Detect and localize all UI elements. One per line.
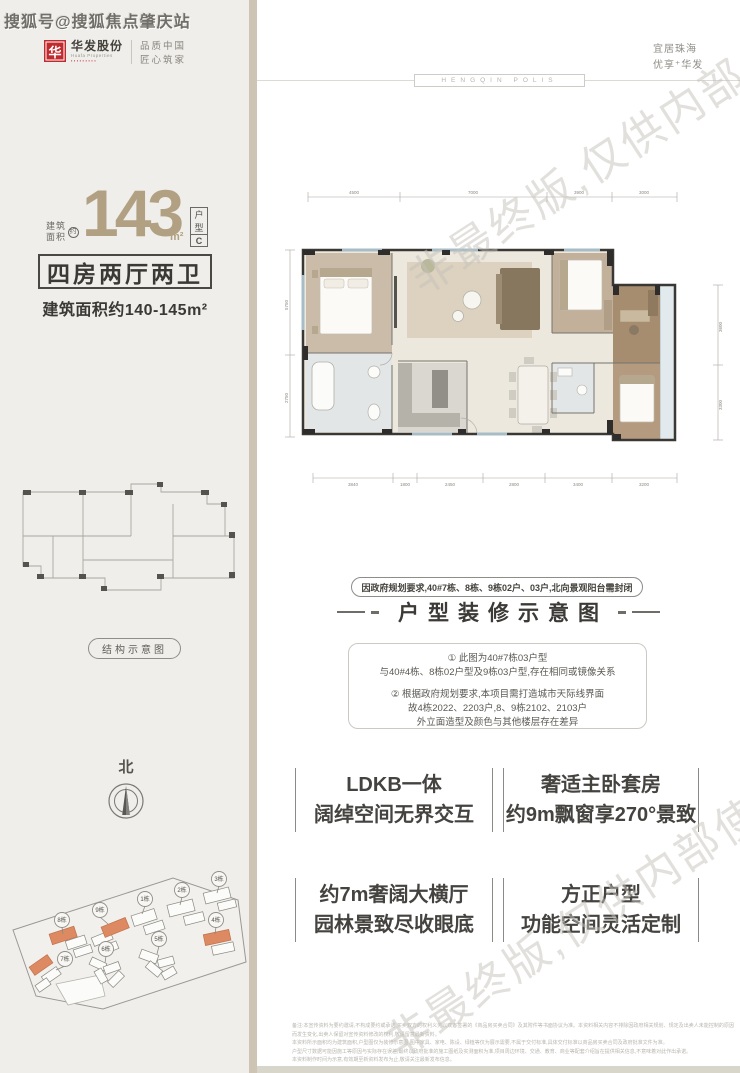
structure-diagram <box>13 476 237 596</box>
logo-texts: 华发股份 Huafa Properties ▪▪▪▪▪▪▪▪▪ <box>71 40 123 65</box>
note-line: ② 根据政府规划要求,本项目需打造城市天际线界面 <box>349 688 646 702</box>
planning-notice: 因政府规划要求,40#7栋、8栋、9栋02户、03户,北向景观阳台需封闭 <box>351 577 643 597</box>
structure-wall-blocks <box>23 482 235 591</box>
svg-text:7000: 7000 <box>468 190 479 195</box>
note-line: 故4栋2022、2203户,8、9栋2102、2103户 <box>349 702 646 716</box>
tagline-line1: 品质中国 <box>140 40 186 54</box>
note-line: 外立面造型及颜色与其他楼层存在差异 <box>349 716 646 730</box>
balloon-4: 4栋 <box>211 916 220 924</box>
compass-north-label: 北 <box>104 756 148 777</box>
note-line: ① 此图为40#7栋03户型 <box>349 652 646 666</box>
compass-icon <box>104 777 148 825</box>
logo-dots: ▪▪▪▪▪▪▪▪▪ <box>71 58 123 64</box>
balloon-1: 1栋 <box>140 895 149 903</box>
structure-label: 结构示意图 <box>88 638 181 659</box>
section-heading-text: 户型装修示意图 <box>389 597 608 627</box>
project-name-badge: HENGQIN POLIS <box>414 74 585 87</box>
feature-grid: LDKB一体 阔绰空间无界交互 奢适主卧套房 约9m飘窗享270°景致 约7m奢… <box>295 768 699 942</box>
rooms-summary: 四房两厅两卫 <box>38 254 212 289</box>
feature-line: LDKB一体 <box>346 770 442 800</box>
logo-tagline: 品质中国 匠心筑家 <box>140 40 186 69</box>
svg-text:3400: 3400 <box>573 482 584 487</box>
disclaimer-line: 户型尺寸数据可能因施工等原因与实际存在误差,最终以政府批准的施工图纸及实测面积为… <box>292 1048 734 1057</box>
logo-separator <box>131 40 132 64</box>
svg-text:1800: 1800 <box>400 482 411 487</box>
type-char-2: 型 <box>191 221 207 234</box>
svg-text:3840: 3840 <box>348 482 359 487</box>
feature-line: 方正户型 <box>561 880 641 910</box>
type-char-3: C <box>191 234 207 246</box>
note-line: 与40#4栋、8栋02户型及9栋03户型,存在相同或镜像关系 <box>349 666 646 680</box>
brand-logo: 华 华发股份 Huafa Properties ▪▪▪▪▪▪▪▪▪ 品质中国 匠… <box>44 40 186 69</box>
unit-area-value: 143 <box>82 180 180 246</box>
svg-text:3600: 3600 <box>718 321 723 332</box>
feature-line: 约9m飘窗享270°景致 <box>506 800 696 830</box>
svg-text:2750: 2750 <box>284 392 289 403</box>
feature-line: 约7m奢阔大横厅 <box>320 880 469 910</box>
area-label-line2: 面积 <box>46 232 66 243</box>
balloon-9: 9栋 <box>95 906 104 914</box>
area-label: 建筑 面积 约 <box>46 221 79 244</box>
approx-badge: 约 <box>68 227 79 238</box>
heading-dash <box>371 611 379 614</box>
balloon-2: 2栋 <box>177 886 186 894</box>
feature-ldkb: LDKB一体 阔绰空间无界交互 <box>295 768 493 832</box>
feature-wide-hall: 约7m奢阔大横厅 园林景致尽收眼底 <box>295 878 493 942</box>
svg-text:5750: 5750 <box>284 299 289 310</box>
balloon-6: 6栋 <box>101 945 110 953</box>
heading-dash <box>632 611 660 613</box>
flyer-page: HENGQIN POLIS 宜居珠海 优享⁺华发 华 华发股份 Huafa Pr… <box>0 0 740 1073</box>
svg-text:3200: 3200 <box>639 482 650 487</box>
slogan-line1: 宜居珠海 <box>653 42 703 58</box>
feature-square-layout: 方正户型 功能空间灵活定制 <box>503 878 699 942</box>
disclaimer-line: 本资料制作时间为示意,有效期至新资料发布为止,敬请关注最新发布信息。 <box>292 1056 734 1065</box>
feature-line: 阔绰空间无界交互 <box>314 800 474 830</box>
brand-slogan: 宜居珠海 优享⁺华发 <box>653 42 703 73</box>
area-label-line1: 建筑 <box>46 221 66 232</box>
feature-line: 功能空间灵活定制 <box>521 910 681 940</box>
svg-text:2450: 2450 <box>445 482 456 487</box>
balloon-7: 7栋 <box>60 955 69 963</box>
svg-text:3300: 3300 <box>718 399 723 410</box>
section-heading: 户型装修示意图 <box>257 598 740 626</box>
logo-name: 华发股份 <box>71 40 123 53</box>
huafa-logo-icon: 华 <box>44 40 66 62</box>
floorplan-image: 4500 7000 3900 3000 3840 1800 2450 2800 … <box>282 150 734 490</box>
sohu-watermark: 搜狐号@搜狐焦点肇庆站 <box>4 8 191 32</box>
svg-text:3900: 3900 <box>574 190 585 195</box>
heading-dash <box>337 611 365 613</box>
area-range: 建筑面积约140-145m² <box>38 296 212 320</box>
feature-line: 园林景致尽收眼底 <box>314 910 474 940</box>
type-char-1: 户 <box>191 208 207 221</box>
svg-text:4500: 4500 <box>349 190 360 195</box>
balloon-8: 8栋 <box>57 916 66 924</box>
tagline-line2: 匠心筑家 <box>140 54 186 68</box>
feature-master-suite: 奢适主卧套房 约9m飘窗享270°景致 <box>503 768 699 832</box>
slogan-line2: 优享⁺华发 <box>653 58 703 74</box>
legal-disclaimer: 备注:本宣传资料为要约邀请,不构成要约或承诺,买卖双方的权利义务以双方签署的《商… <box>292 1022 734 1065</box>
svg-text:2800: 2800 <box>509 482 520 487</box>
svg-text:3000: 3000 <box>639 190 650 195</box>
bottom-strip <box>257 1066 740 1073</box>
unit-type-box: 户 型 C <box>190 207 208 247</box>
heading-dash <box>618 611 626 614</box>
balloon-5: 5栋 <box>154 935 163 943</box>
balloon-3: 3栋 <box>214 875 223 883</box>
unit-area-unit: m² <box>170 231 183 243</box>
balcony <box>660 285 675 440</box>
compass: 北 <box>104 756 148 830</box>
disclaimer-line: 备注:本宣传资料为要约邀请,不构成要约或承诺,买卖双方的权利义务以双方签署的《商… <box>292 1022 734 1039</box>
siteplan: 1栋 2栋 3栋 4栋 5栋 6栋 7栋 8栋 9栋 <box>8 868 252 1018</box>
disclaimer-line: 本资料所示面积均为建筑面积,户型图仅为装修示意图,图中家具、家电、陈设、绿植等仅… <box>292 1039 734 1048</box>
feature-line: 奢适主卧套房 <box>541 770 661 800</box>
notes-box: ① 此图为40#7栋03户型 与40#4栋、8栋02户型及9栋03户型,存在相同… <box>348 643 647 729</box>
